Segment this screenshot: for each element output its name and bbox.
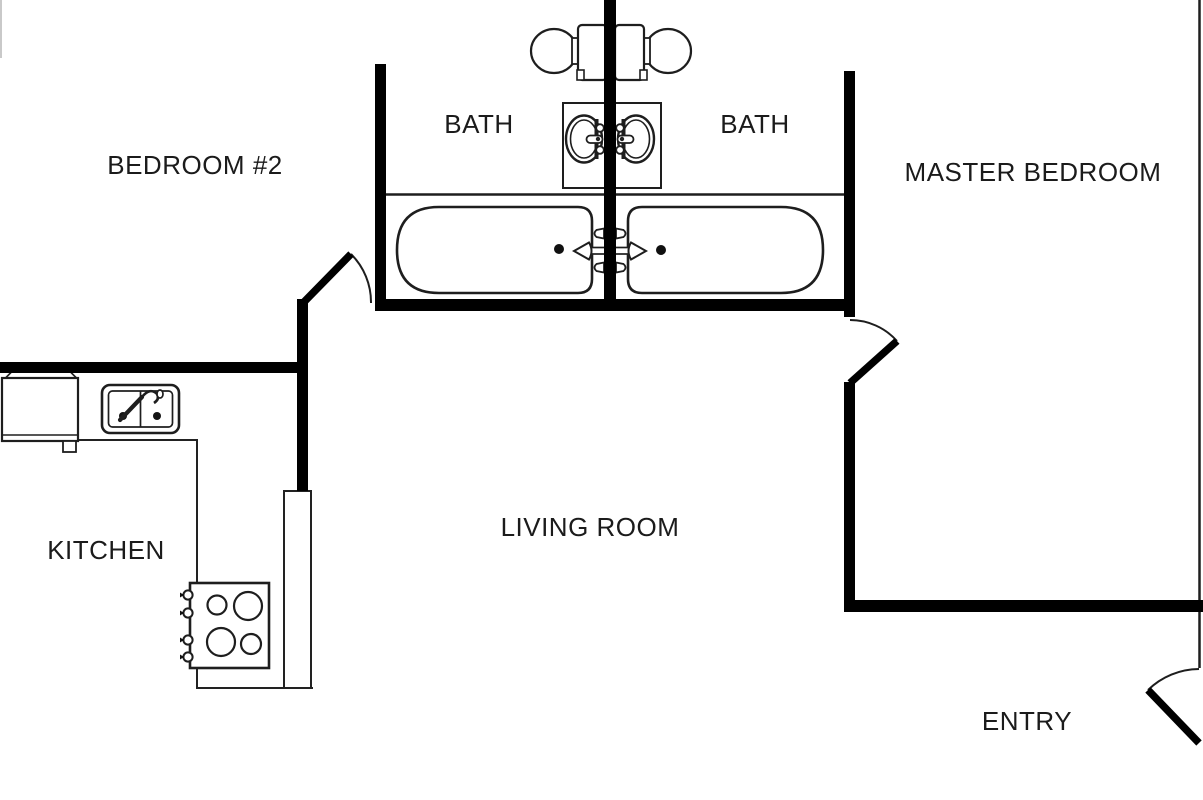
room-label-entry: ENTRY xyxy=(982,706,1072,736)
faucet-base xyxy=(620,137,624,141)
vanity-sink-right xyxy=(616,116,654,163)
toilet-right xyxy=(615,25,691,80)
flush-handle xyxy=(577,70,584,80)
tub-drain xyxy=(656,245,666,255)
knob xyxy=(183,635,192,644)
wall-bath-right xyxy=(844,71,855,317)
toilet-bowl xyxy=(531,29,577,73)
tub-drain xyxy=(554,244,564,254)
bathtub-left xyxy=(397,207,605,293)
wall-bath-center xyxy=(604,0,616,311)
room-label-bath-right: BATH xyxy=(720,109,789,139)
faucet-handle xyxy=(616,124,624,132)
floor-plan: BEDROOM #2 BATH BATH MASTER BEDROOM KITC… xyxy=(0,0,1203,800)
door-arc xyxy=(351,254,371,303)
tub-valve xyxy=(595,263,605,273)
door-leaf xyxy=(303,254,351,303)
room-label-bedroom-2: BEDROOM #2 xyxy=(107,150,283,180)
faucet-handle xyxy=(596,124,604,132)
faucet-handle xyxy=(596,146,604,154)
room-label-living-room: LIVING ROOM xyxy=(501,512,680,542)
door-master-bedroom xyxy=(850,320,897,383)
wall-kitchen-top xyxy=(0,362,308,373)
soap-dispenser xyxy=(157,390,163,398)
knob xyxy=(183,608,192,617)
tub-valve xyxy=(616,263,626,273)
faucet-handle xyxy=(616,146,624,154)
wall-living-bottom xyxy=(844,600,1203,612)
room-label-kitchen: KITCHEN xyxy=(47,535,165,565)
cooktop xyxy=(180,583,269,668)
vanity-sink-left xyxy=(566,116,604,163)
tub-valve xyxy=(595,229,605,239)
faucet-base xyxy=(596,137,600,141)
door-leaf xyxy=(1148,690,1199,743)
wall-bath-left xyxy=(375,64,386,311)
door-leaf xyxy=(850,341,897,383)
door-bedroom-2 xyxy=(303,254,371,303)
door-arc xyxy=(1148,669,1199,690)
tub-valve xyxy=(616,229,626,239)
wall-bath-bottom xyxy=(375,299,855,311)
door-entry xyxy=(1148,669,1199,743)
bathtub-right xyxy=(615,207,823,293)
boundary-lines xyxy=(1,0,1200,668)
kitchen-sink xyxy=(102,385,179,433)
flush-handle xyxy=(640,70,647,80)
room-label-master-bedroom: MASTER BEDROOM xyxy=(905,157,1162,187)
toilet-bowl xyxy=(645,29,691,73)
sink-drain-right xyxy=(153,412,161,420)
knob xyxy=(183,652,192,661)
fridge-foot xyxy=(63,441,76,452)
wall-bedroom2-kitchen xyxy=(297,299,308,491)
toilet-left xyxy=(531,25,607,80)
refrigerator xyxy=(2,373,78,453)
fridge-tick-right xyxy=(71,373,76,378)
fridge-body xyxy=(2,378,78,441)
room-label-bath-left: BATH xyxy=(444,109,513,139)
wall-master-living xyxy=(844,382,855,612)
counter-strip xyxy=(284,491,311,688)
knob xyxy=(183,590,192,599)
door-arc xyxy=(850,320,897,341)
fridge-tick-left xyxy=(6,373,11,378)
